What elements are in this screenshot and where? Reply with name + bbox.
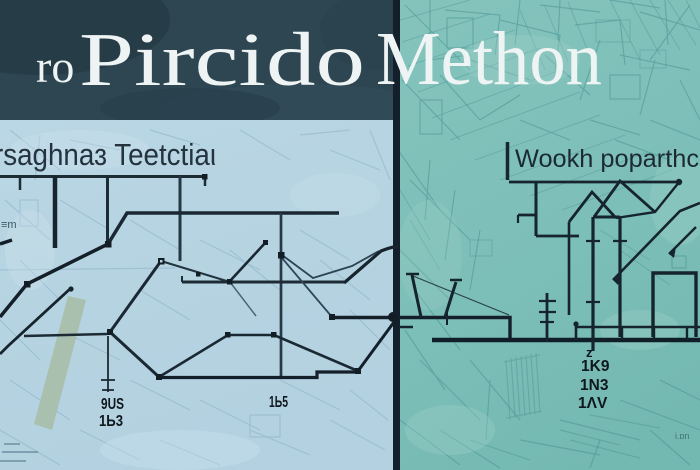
svg-text:≡m: ≡m [1, 219, 17, 231]
svg-text:Wookh poparthc: Wookh poparthc [515, 145, 699, 173]
svg-text:i.ɒn: i.ɒn [675, 431, 690, 441]
svg-text:1N3: 1N3 [580, 377, 609, 394]
svg-text:ro: ro [36, 41, 74, 92]
svg-text:9US: 9US [101, 396, 124, 413]
svg-text:1K9: 1K9 [581, 358, 610, 375]
svg-text:1Ь3: 1Ь3 [99, 413, 123, 430]
svg-text:rsaghnaɜ Teetctiaι: rsaghnaɜ Teetctiaι [0, 138, 216, 172]
svg-text:Methon: Methon [376, 17, 602, 101]
svg-text:Pircido: Pircido [79, 18, 365, 102]
svg-text:1ΛV: 1ΛV [578, 395, 608, 412]
svg-text:1Ь5: 1Ь5 [269, 394, 288, 411]
